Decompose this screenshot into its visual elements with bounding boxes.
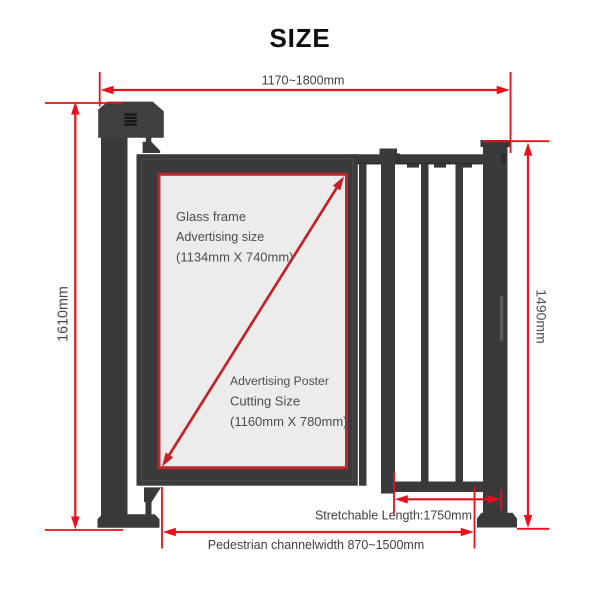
svg-text:Advertising size: Advertising size bbox=[176, 230, 264, 244]
svg-text:Glass frame: Glass frame bbox=[176, 209, 246, 224]
svg-text:SIZE: SIZE bbox=[270, 23, 331, 53]
svg-text:Stretchable Length:1750mm: Stretchable Length:1750mm bbox=[315, 508, 472, 522]
svg-text:1610mm: 1610mm bbox=[56, 286, 72, 342]
svg-text:(1160mm X 780mm): (1160mm X 780mm) bbox=[230, 414, 348, 429]
svg-text:1170~1800mm: 1170~1800mm bbox=[262, 74, 345, 88]
svg-text:Pedestrian channelwidth 870~15: Pedestrian channelwidth 870~1500mm bbox=[208, 538, 424, 552]
svg-text:Cutting Size: Cutting Size bbox=[230, 393, 300, 408]
svg-text:(1134mm X 740mm): (1134mm X 740mm) bbox=[176, 249, 294, 264]
svg-text:Advertising Poster: Advertising Poster bbox=[230, 374, 329, 388]
svg-text:1490mm: 1490mm bbox=[534, 289, 550, 343]
